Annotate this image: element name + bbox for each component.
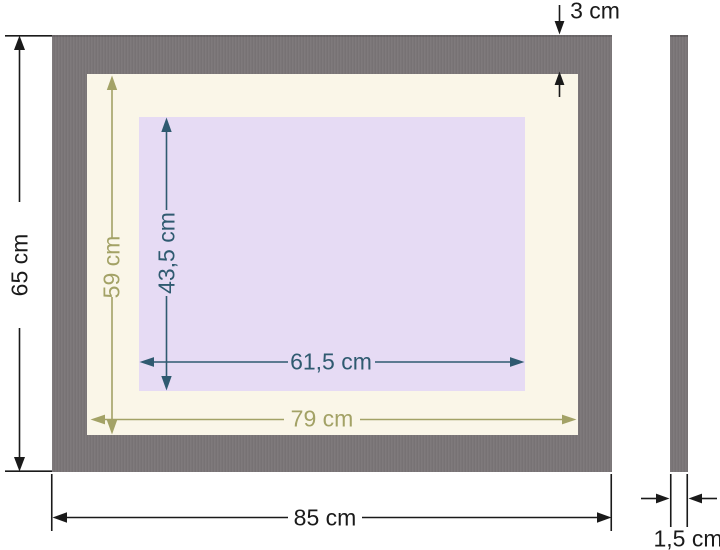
arrowhead-up xyxy=(14,36,25,51)
arrowhead-up xyxy=(107,76,117,91)
arrowhead-right xyxy=(656,494,670,504)
side-depth-dimension xyxy=(641,474,717,527)
arrowhead-right xyxy=(597,512,612,523)
arrowhead-left xyxy=(140,357,155,367)
opening-height-label: 43,5 cm xyxy=(156,212,179,294)
side-depth-label: 1,5 cm xyxy=(653,528,720,550)
outer-width-label: 85 cm xyxy=(294,507,357,530)
arrowhead-up xyxy=(161,118,171,133)
arrowhead-up xyxy=(555,72,565,86)
arrowhead-down xyxy=(14,457,25,472)
mat-height-label: 59 cm xyxy=(101,236,124,299)
arrowhead-left xyxy=(689,494,703,504)
outer-height-label: 65 cm xyxy=(9,234,32,297)
arrowhead-down xyxy=(161,376,171,391)
arrowhead-right xyxy=(510,357,525,367)
arrowhead-right xyxy=(562,415,577,425)
opening-width-label: 61,5 cm xyxy=(290,351,372,374)
frame-thickness-label: 3 cm xyxy=(570,0,620,23)
arrowhead-left xyxy=(91,415,106,425)
arrowhead-down xyxy=(107,420,117,435)
arrowhead-down xyxy=(555,21,565,35)
mat-width-label: 79 cm xyxy=(291,408,354,431)
frame-thickness-dimension xyxy=(555,5,565,97)
frame-dimension-diagram: 65 cm 85 cm 3 cm 59 cm 79 cm 43,5 cm 61,… xyxy=(0,0,720,550)
arrowhead-left xyxy=(53,512,68,523)
